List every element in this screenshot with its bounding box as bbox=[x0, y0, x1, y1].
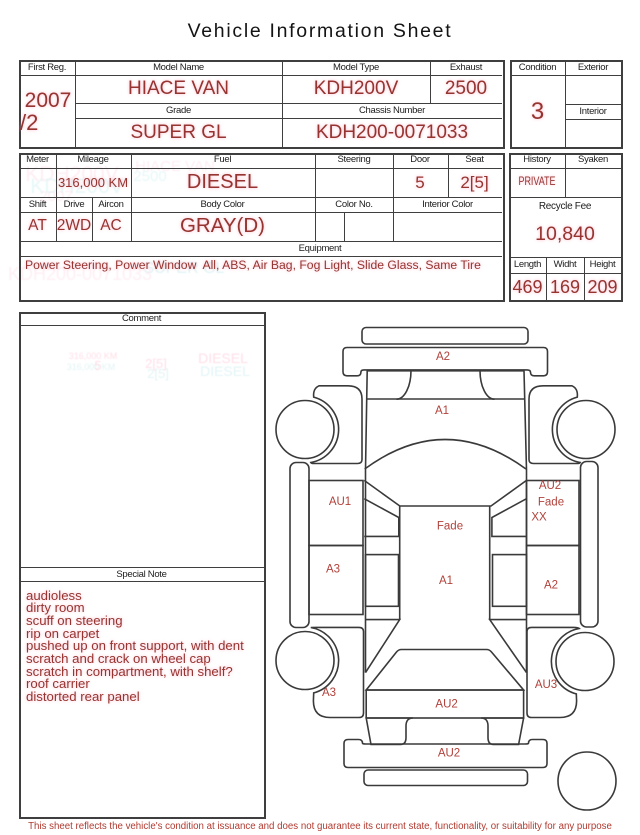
svg-text:XX: XX bbox=[531, 512, 547, 524]
svg-text:AU3: AU3 bbox=[535, 679, 557, 691]
svg-text:A2: A2 bbox=[544, 580, 558, 592]
svg-text:A1: A1 bbox=[439, 575, 453, 587]
svg-text:A2: A2 bbox=[436, 351, 450, 363]
svg-text:AU2: AU2 bbox=[435, 699, 457, 711]
svg-text:AU2: AU2 bbox=[539, 480, 561, 492]
svg-text:AU2: AU2 bbox=[438, 748, 460, 760]
svg-text:Fade: Fade bbox=[538, 497, 564, 509]
svg-text:A3: A3 bbox=[322, 687, 336, 699]
svg-text:A1: A1 bbox=[435, 405, 449, 417]
svg-text:AU1: AU1 bbox=[329, 496, 351, 508]
svg-text:A3: A3 bbox=[326, 564, 340, 576]
svg-text:Fade: Fade bbox=[437, 521, 463, 533]
